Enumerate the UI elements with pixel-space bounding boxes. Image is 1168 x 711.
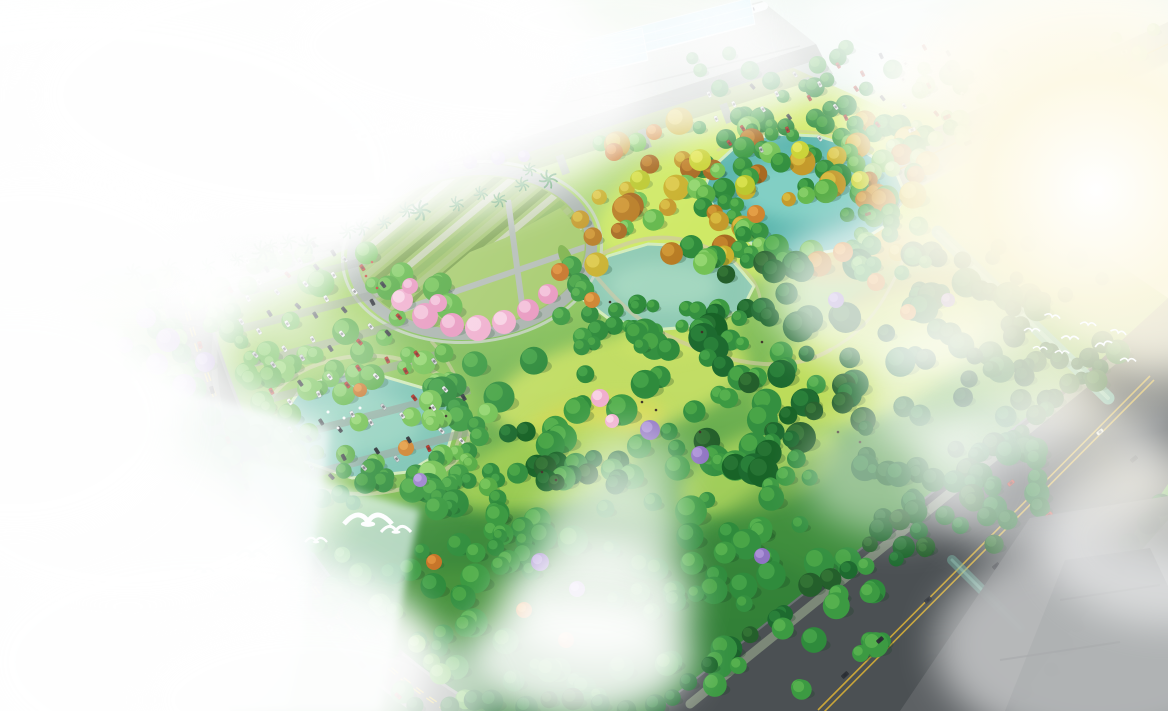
egret-body xyxy=(248,554,257,558)
egret-body xyxy=(392,530,401,534)
park-aerial-rendering xyxy=(0,0,1168,711)
egret-body xyxy=(361,521,375,527)
egret-body xyxy=(222,595,229,598)
scene-canvas xyxy=(0,0,1168,711)
mist-clouds xyxy=(0,0,1168,711)
egret-body xyxy=(313,541,320,544)
egret-body xyxy=(201,571,207,573)
egret-body xyxy=(284,578,292,581)
